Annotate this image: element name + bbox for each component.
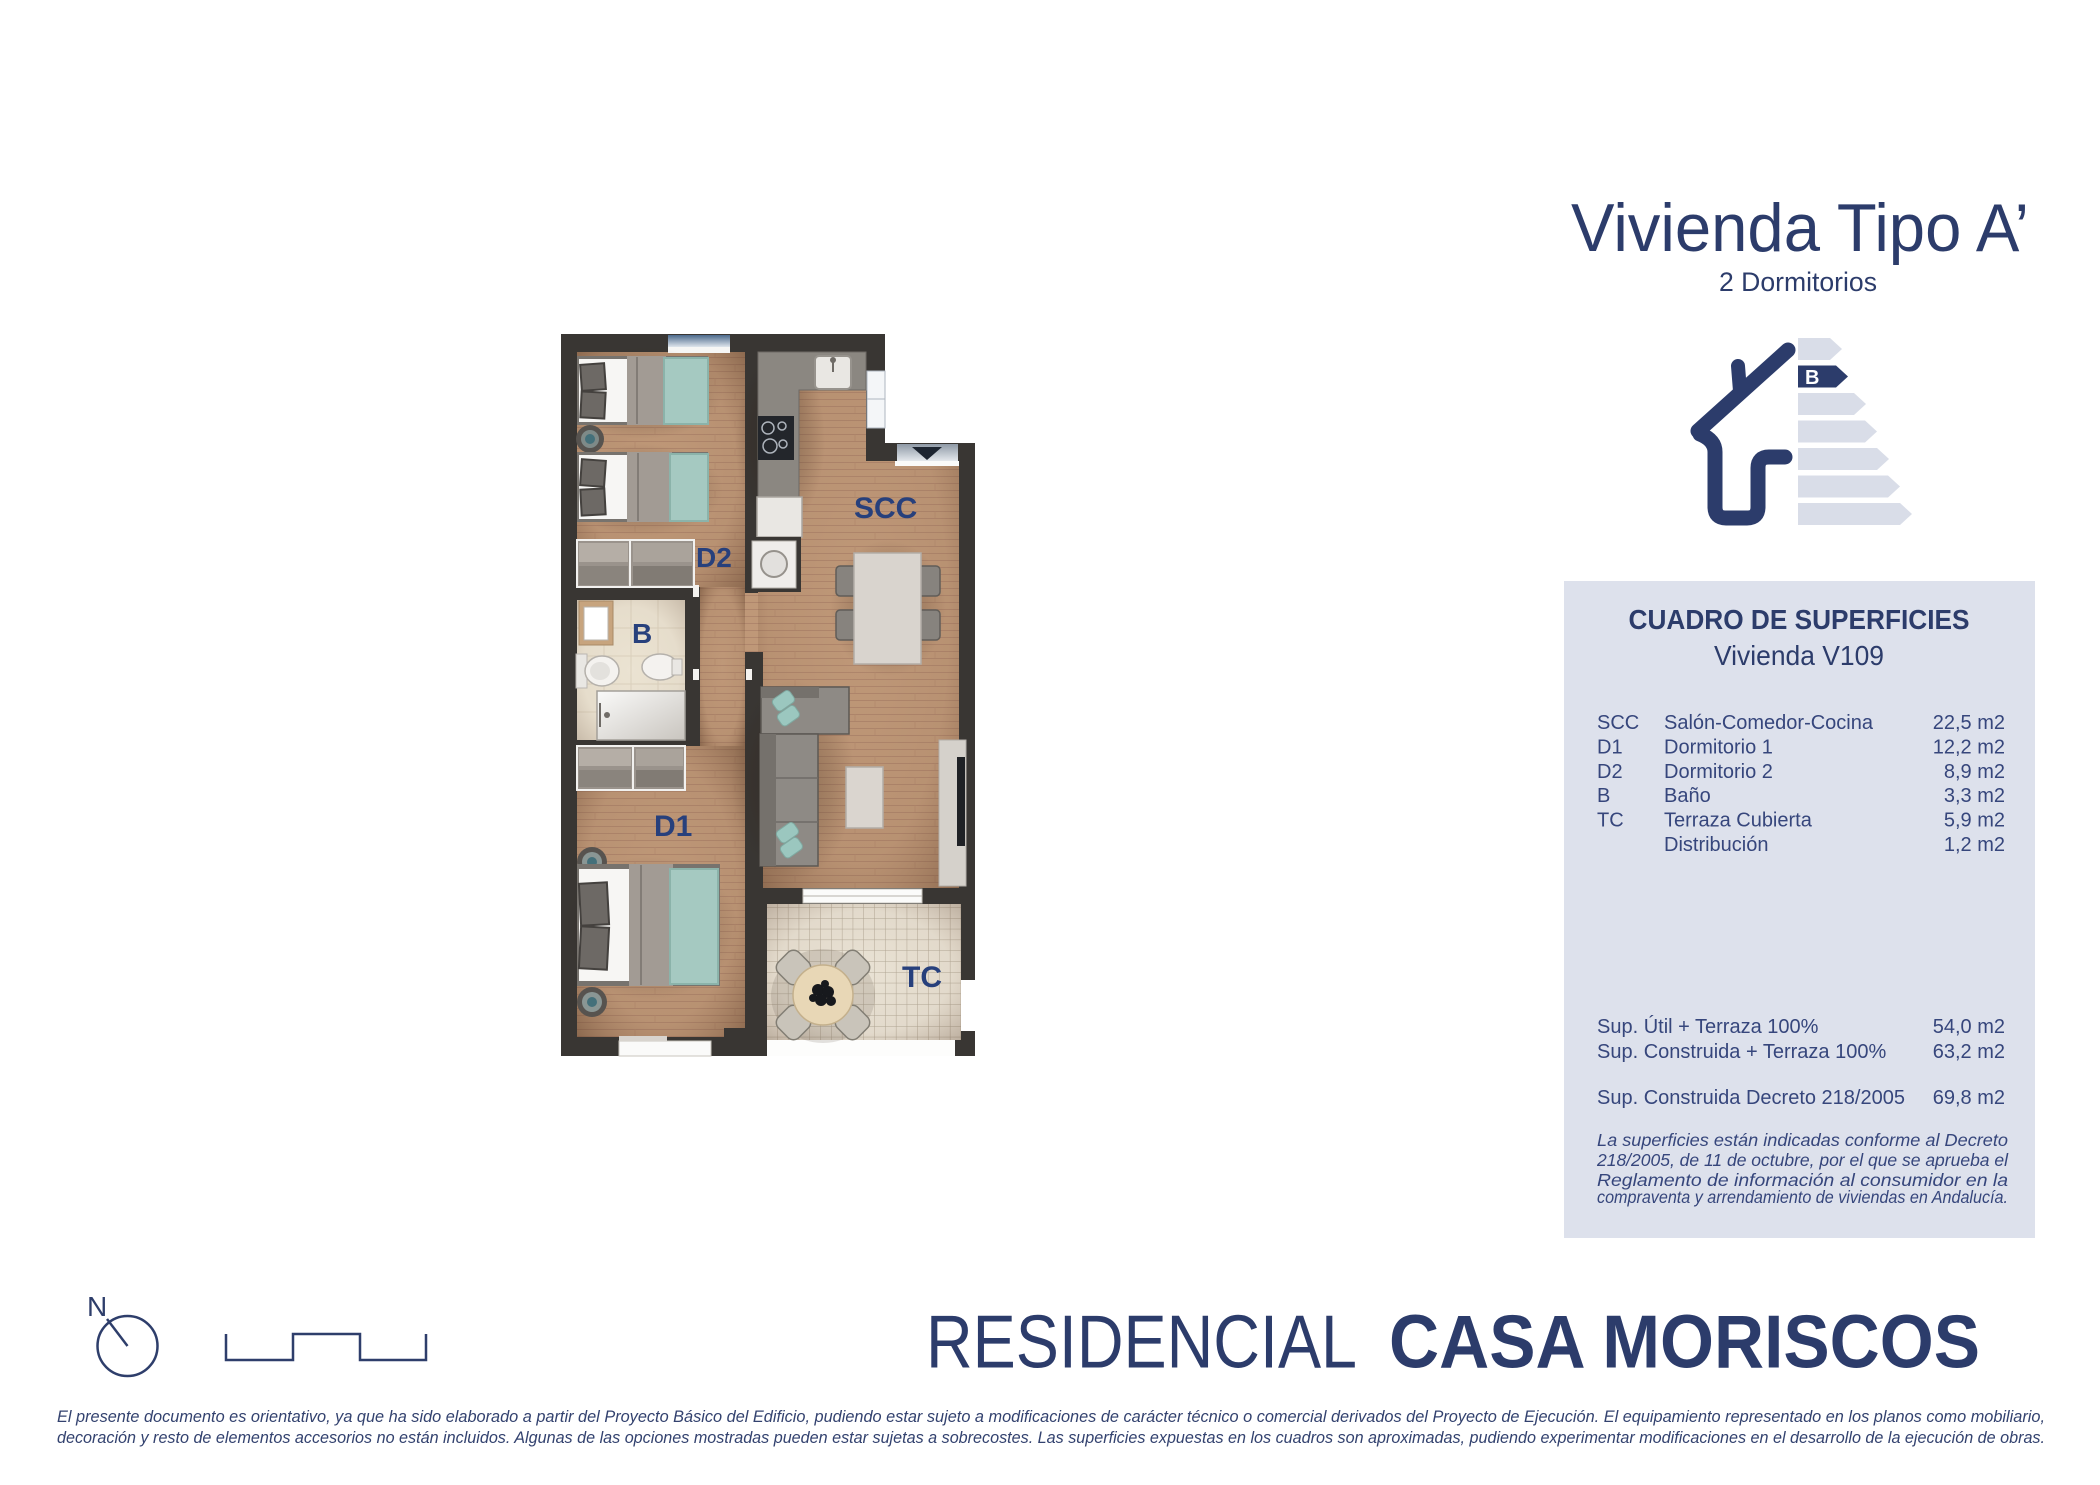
- svg-text:B: B: [632, 618, 652, 649]
- svg-text:SCC: SCC: [1597, 712, 1639, 734]
- svg-text:54,0 m2: 54,0 m2: [1933, 1016, 2005, 1038]
- svg-text:D1: D1: [1597, 736, 1623, 758]
- svg-text:22,5 m2: 22,5 m2: [1933, 712, 2005, 734]
- svg-text:B: B: [1597, 785, 1610, 807]
- svg-text:Vivienda V109: Vivienda V109: [1714, 640, 1884, 671]
- svg-text:218/2005, de 11 de octubre, po: 218/2005, de 11 de octubre, por el que s…: [1596, 1150, 2009, 1170]
- svg-text:63,2 m2: 63,2 m2: [1933, 1041, 2005, 1063]
- svg-text:D2: D2: [696, 542, 732, 573]
- svg-text:12,2 m2: 12,2 m2: [1933, 736, 2005, 758]
- svg-text:Distribución: Distribución: [1664, 834, 1768, 856]
- svg-text:TC: TC: [1597, 810, 1624, 832]
- svg-text:1,2 m2: 1,2 m2: [1944, 834, 2005, 856]
- svg-text:3,3 m2: 3,3 m2: [1944, 785, 2005, 807]
- svg-text:8,9 m2: 8,9 m2: [1944, 761, 2005, 783]
- svg-text:D1: D1: [654, 810, 692, 843]
- svg-text:D2: D2: [1597, 761, 1623, 783]
- svg-text:RESIDENCIALCASA MORISCOS: RESIDENCIALCASA MORISCOS: [926, 1300, 1980, 1384]
- svg-text:2 Dormitorios: 2 Dormitorios: [1719, 267, 1877, 297]
- svg-text:Salón-Comedor-Cocina: Salón-Comedor-Cocina: [1664, 712, 1874, 734]
- svg-text:TC: TC: [902, 961, 942, 994]
- svg-text:CUADRO DE SUPERFICIES: CUADRO DE SUPERFICIES: [1629, 604, 1970, 635]
- svg-text:Sup. Útil + Terraza 100%: Sup. Útil + Terraza 100%: [1597, 1015, 1819, 1038]
- svg-text:Baño: Baño: [1664, 785, 1711, 807]
- svg-text:Dormitorio 1: Dormitorio 1: [1664, 736, 1773, 758]
- svg-text:Vivienda Tipo A’: Vivienda Tipo A’: [1571, 190, 2029, 266]
- svg-text:N: N: [87, 1291, 107, 1322]
- svg-text:Sup. Construida Decreto 218/20: Sup. Construida Decreto 218/2005: [1597, 1087, 1905, 1109]
- svg-text:La superficies están indicadas: La superficies están indicadas conforme …: [1597, 1130, 2008, 1150]
- svg-text:5,9 m2: 5,9 m2: [1944, 810, 2005, 832]
- svg-text:El presente documento es orien: El presente documento es orientativo, ya…: [57, 1408, 2045, 1426]
- svg-text:SCC: SCC: [854, 492, 917, 525]
- svg-text:69,8 m2: 69,8 m2: [1933, 1087, 2005, 1109]
- svg-text:Sup. Construida + Terraza 100%: Sup. Construida + Terraza 100%: [1597, 1041, 1886, 1063]
- svg-text:compraventa y arrendamiento de: compraventa y arrendamiento de viviendas…: [1597, 1187, 2008, 1207]
- svg-text:decoración y resto de elemento: decoración y resto de elementos accesori…: [57, 1429, 2045, 1447]
- svg-text:B: B: [1805, 367, 1819, 389]
- svg-text:Dormitorio 2: Dormitorio 2: [1664, 761, 1773, 783]
- svg-text:Terraza Cubierta: Terraza Cubierta: [1664, 810, 1813, 832]
